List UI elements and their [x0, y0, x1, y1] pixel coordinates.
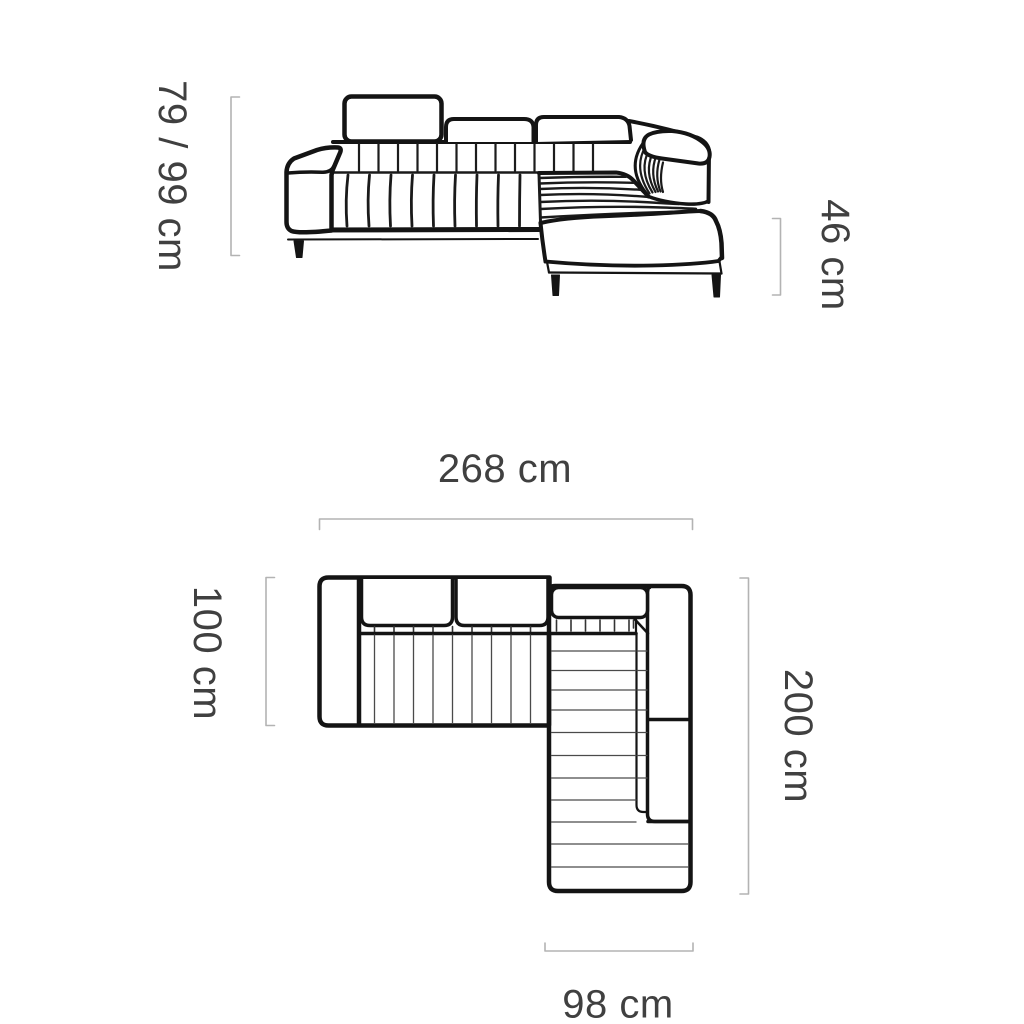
svg-text:200 cm: 200 cm: [776, 669, 820, 803]
svg-text:79 / 99 cm: 79 / 99 cm: [150, 80, 194, 272]
svg-text:268 cm: 268 cm: [438, 447, 572, 491]
svg-text:46 cm: 46 cm: [813, 199, 857, 310]
svg-text:98 cm: 98 cm: [562, 983, 673, 1024]
svg-text:100 cm: 100 cm: [185, 586, 229, 720]
